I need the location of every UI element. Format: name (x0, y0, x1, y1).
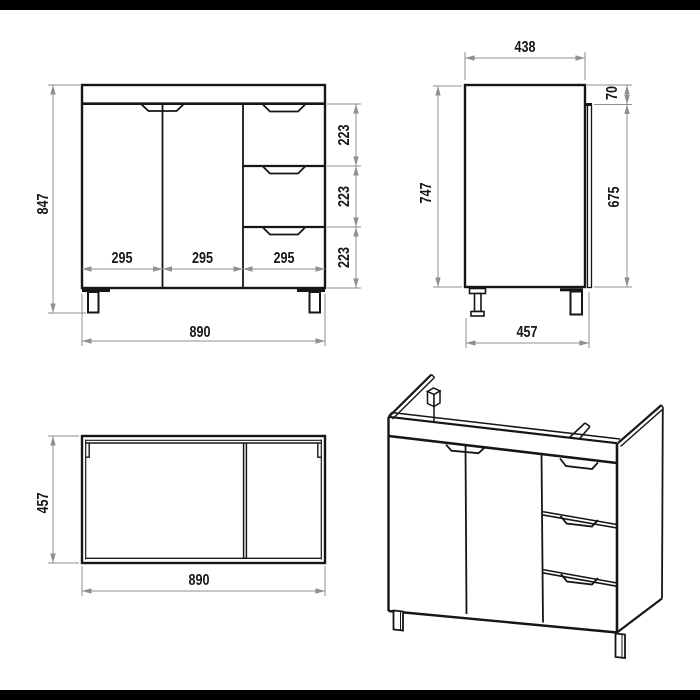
front-view-legs (82, 289, 325, 313)
leg (310, 292, 321, 313)
dim-side-height: 747 (418, 182, 435, 203)
side-view-dimensions (433, 52, 632, 348)
technical-drawing-sheet: 847 890 295 295 295 223 223 223 (0, 0, 700, 700)
dim-drawer-height-2: 223 (336, 186, 353, 207)
leg (88, 292, 99, 313)
dim-front-section-width-3: 295 (274, 250, 295, 267)
dim-front-section-width-1: 295 (112, 250, 133, 267)
dim-front-overall-height: 847 (35, 193, 52, 214)
drawer-handle-recess (263, 167, 305, 174)
bottom-black-bar (0, 690, 700, 700)
top-view-outline (82, 436, 325, 563)
side-view (465, 85, 592, 316)
dim-front-section-width-2: 295 (192, 250, 213, 267)
dim-top-width: 890 (189, 572, 210, 589)
perspective-view (389, 375, 664, 659)
perspective-carcass (389, 413, 621, 633)
perspective-handles (446, 445, 598, 585)
side-view-legs (470, 288, 584, 316)
dim-side-top-gap: 70 (604, 86, 621, 100)
middle-bracket (570, 423, 591, 439)
door-edge-panel (588, 105, 592, 288)
dim-drawer-height-1: 223 (336, 124, 353, 145)
dim-side-top-depth: 438 (515, 39, 536, 56)
leg-foot (471, 312, 484, 317)
cabinet-drawing: 847 890 295 295 295 223 223 223 (0, 0, 700, 700)
perspective-side-panels (389, 375, 664, 633)
leg (394, 611, 404, 631)
top-view-dimensions (48, 436, 325, 596)
leg (571, 292, 583, 315)
top-black-bar (0, 0, 700, 10)
dim-front-overall-width: 890 (190, 324, 211, 341)
top-view (82, 436, 325, 563)
front-view (82, 85, 325, 313)
dim-drawer-height-3: 223 (336, 247, 353, 268)
leg (616, 634, 626, 659)
dim-side-bottom-depth: 457 (517, 324, 538, 341)
top-view-dimension-labels: 457 890 (35, 492, 210, 589)
front-view-handle-recesses (142, 105, 305, 235)
dim-top-depth: 457 (35, 492, 52, 513)
side-view-outline (465, 85, 592, 288)
drawer-handle-recess (263, 105, 305, 112)
perspective-legs (394, 611, 626, 659)
leg-stem (475, 294, 482, 312)
drawer-handle-recess (263, 228, 305, 235)
dim-side-door-height: 675 (606, 186, 623, 207)
